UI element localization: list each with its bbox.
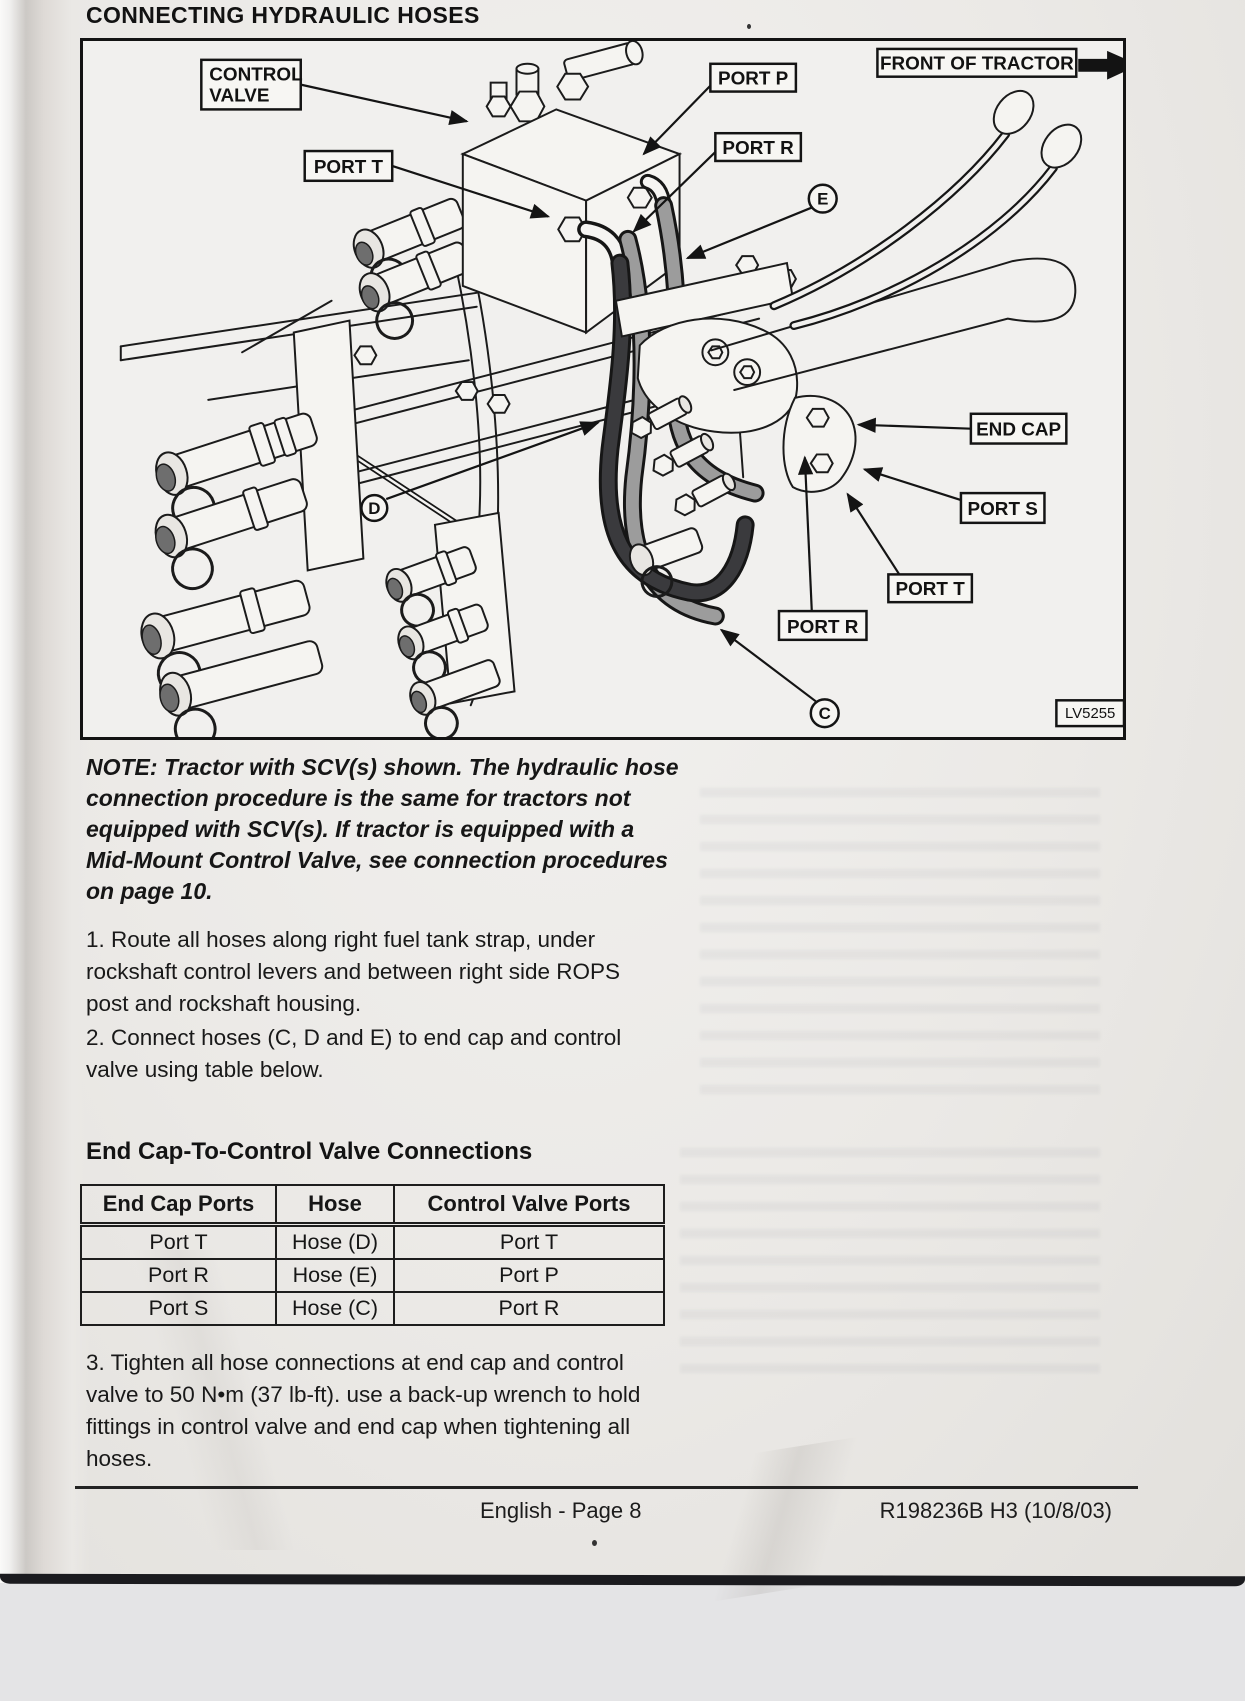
table-row: Port R Hose (E) Port P — [81, 1259, 664, 1292]
figure-code: LV5255 — [1056, 700, 1123, 726]
svg-text:PORT R: PORT R — [787, 616, 859, 637]
label-front-of-tractor: FRONT OF TRACTOR — [877, 49, 1123, 80]
col-end-cap-ports: End Cap Ports — [81, 1185, 276, 1225]
svg-text:LV5255: LV5255 — [1065, 706, 1115, 722]
step-2: 2. Connect hoses (C, D and E) to end cap… — [86, 1022, 686, 1086]
front-arrow — [1078, 51, 1123, 80]
note-line: NOTE: Tractor with SCV(s) shown. The hyd… — [86, 752, 696, 783]
label-port-r-endcap: PORT R — [779, 611, 866, 640]
cell: Port R — [394, 1292, 664, 1325]
step-line: 1. Route all hoses along right fuel tank… — [86, 924, 686, 956]
label-control-valve-text2: VALVE — [209, 85, 269, 106]
svg-text:END CAP: END CAP — [976, 419, 1061, 440]
step-1: 1. Route all hoses along right fuel tank… — [86, 924, 686, 1020]
step-line: 3. Tighten all hose connections at end c… — [86, 1347, 686, 1379]
cell: Hose (E) — [276, 1259, 394, 1292]
lever-knob — [1033, 117, 1089, 175]
page-bottom-edge — [0, 1574, 1245, 1587]
svg-text:PORT S: PORT S — [968, 498, 1038, 519]
cell: Hose (D) — [276, 1225, 394, 1260]
step-line: 2. Connect hoses (C, D and E) to end cap… — [86, 1022, 686, 1054]
callout-e: E — [809, 185, 837, 213]
table-title: End Cap-To-Control Valve Connections — [86, 1138, 532, 1166]
label-control-valve: CONTROL VALVE — [201, 60, 302, 110]
note-line: equipped with SCV(s). If tractor is equi… — [86, 814, 696, 845]
paper-speck — [747, 24, 751, 29]
callout-d: D — [361, 495, 387, 521]
label-port-t-valve: PORT T — [305, 151, 392, 181]
col-hose: Hose — [276, 1185, 394, 1225]
svg-text:E: E — [817, 190, 828, 209]
footer-page-label: English - Page 8 — [480, 1498, 641, 1524]
cell: Port P — [394, 1259, 664, 1292]
label-end-cap: END CAP — [971, 414, 1066, 444]
label-port-t-endcap: PORT T — [888, 574, 972, 602]
cell: Port R — [81, 1259, 276, 1292]
hydraulic-diagram: CONTROL VALVE PORT T PORT P PORT R FRONT… — [83, 41, 1123, 737]
step-line: rockshaft control levers and between rig… — [86, 956, 686, 988]
lever-knob — [986, 83, 1042, 141]
page-binding-shadow — [0, 0, 90, 1583]
step-line: valve using table below. — [86, 1054, 686, 1086]
left-coupler-bracket — [137, 321, 364, 737]
label-port-r-top: PORT R — [715, 133, 801, 161]
callout-c: C — [811, 699, 839, 727]
label-port-s: PORT S — [961, 493, 1045, 523]
step-line: post and rockshaft housing. — [86, 988, 686, 1020]
svg-text:D: D — [368, 499, 380, 518]
cell: Port T — [81, 1225, 276, 1260]
svg-text:PORT T: PORT T — [314, 156, 384, 177]
svg-text:PORT R: PORT R — [722, 137, 794, 158]
note-line: Mid-Mount Control Valve, see connection … — [86, 845, 696, 876]
footer-rule — [75, 1486, 1138, 1489]
step-line: fittings in control valve and end cap wh… — [86, 1411, 686, 1443]
col-control-valve-ports: Control Valve Ports — [394, 1185, 664, 1225]
step-3: 3. Tighten all hose connections at end c… — [86, 1347, 686, 1475]
note-line: connection procedure is the same for tra… — [86, 783, 696, 814]
cell: Port S — [81, 1292, 276, 1325]
table-row: Port S Hose (C) Port R — [81, 1292, 664, 1325]
connections-table: End Cap Ports Hose Control Valve Ports P… — [80, 1184, 665, 1326]
label-control-valve-text1: CONTROL — [209, 64, 302, 85]
footer-doc-number: R198236B H3 (10/8/03) — [880, 1498, 1112, 1524]
svg-text:FRONT OF TRACTOR: FRONT OF TRACTOR — [880, 53, 1074, 74]
step-line: hoses. — [86, 1443, 686, 1475]
svg-text:PORT T: PORT T — [895, 578, 965, 599]
bottom-coupler-bracket — [382, 513, 515, 737]
paper-speck — [592, 1540, 597, 1546]
figure-frame: CONTROL VALVE PORT T PORT P PORT R FRONT… — [80, 38, 1126, 740]
note-line: on page 10. — [86, 876, 696, 907]
label-port-p: PORT P — [710, 64, 796, 92]
note-paragraph: NOTE: Tractor with SCV(s) shown. The hyd… — [86, 752, 696, 907]
table-header-row: End Cap Ports Hose Control Valve Ports — [81, 1185, 664, 1225]
step-line: valve to 50 N•m (37 lb-ft). use a back-u… — [86, 1379, 686, 1411]
cell: Port T — [394, 1225, 664, 1260]
svg-text:PORT P: PORT P — [718, 68, 788, 89]
cell: Hose (C) — [276, 1292, 394, 1325]
page-title: CONNECTING HYDRAULIC HOSES — [86, 2, 480, 29]
svg-text:C: C — [819, 704, 831, 723]
table-row: Port T Hose (D) Port T — [81, 1225, 664, 1260]
